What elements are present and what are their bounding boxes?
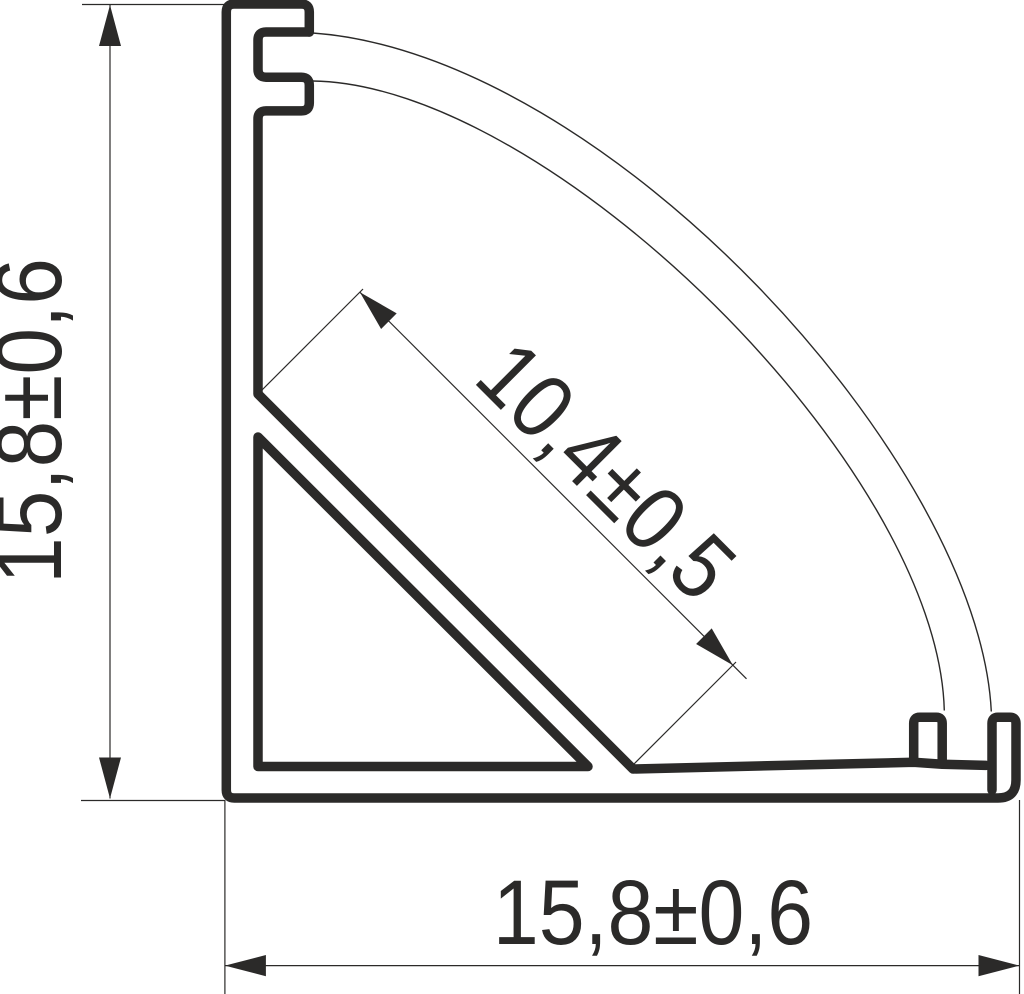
svg-text:15,8±0,6: 15,8±0,6 (0, 258, 81, 584)
svg-text:15,8±0,6: 15,8±0,6 (493, 861, 813, 964)
